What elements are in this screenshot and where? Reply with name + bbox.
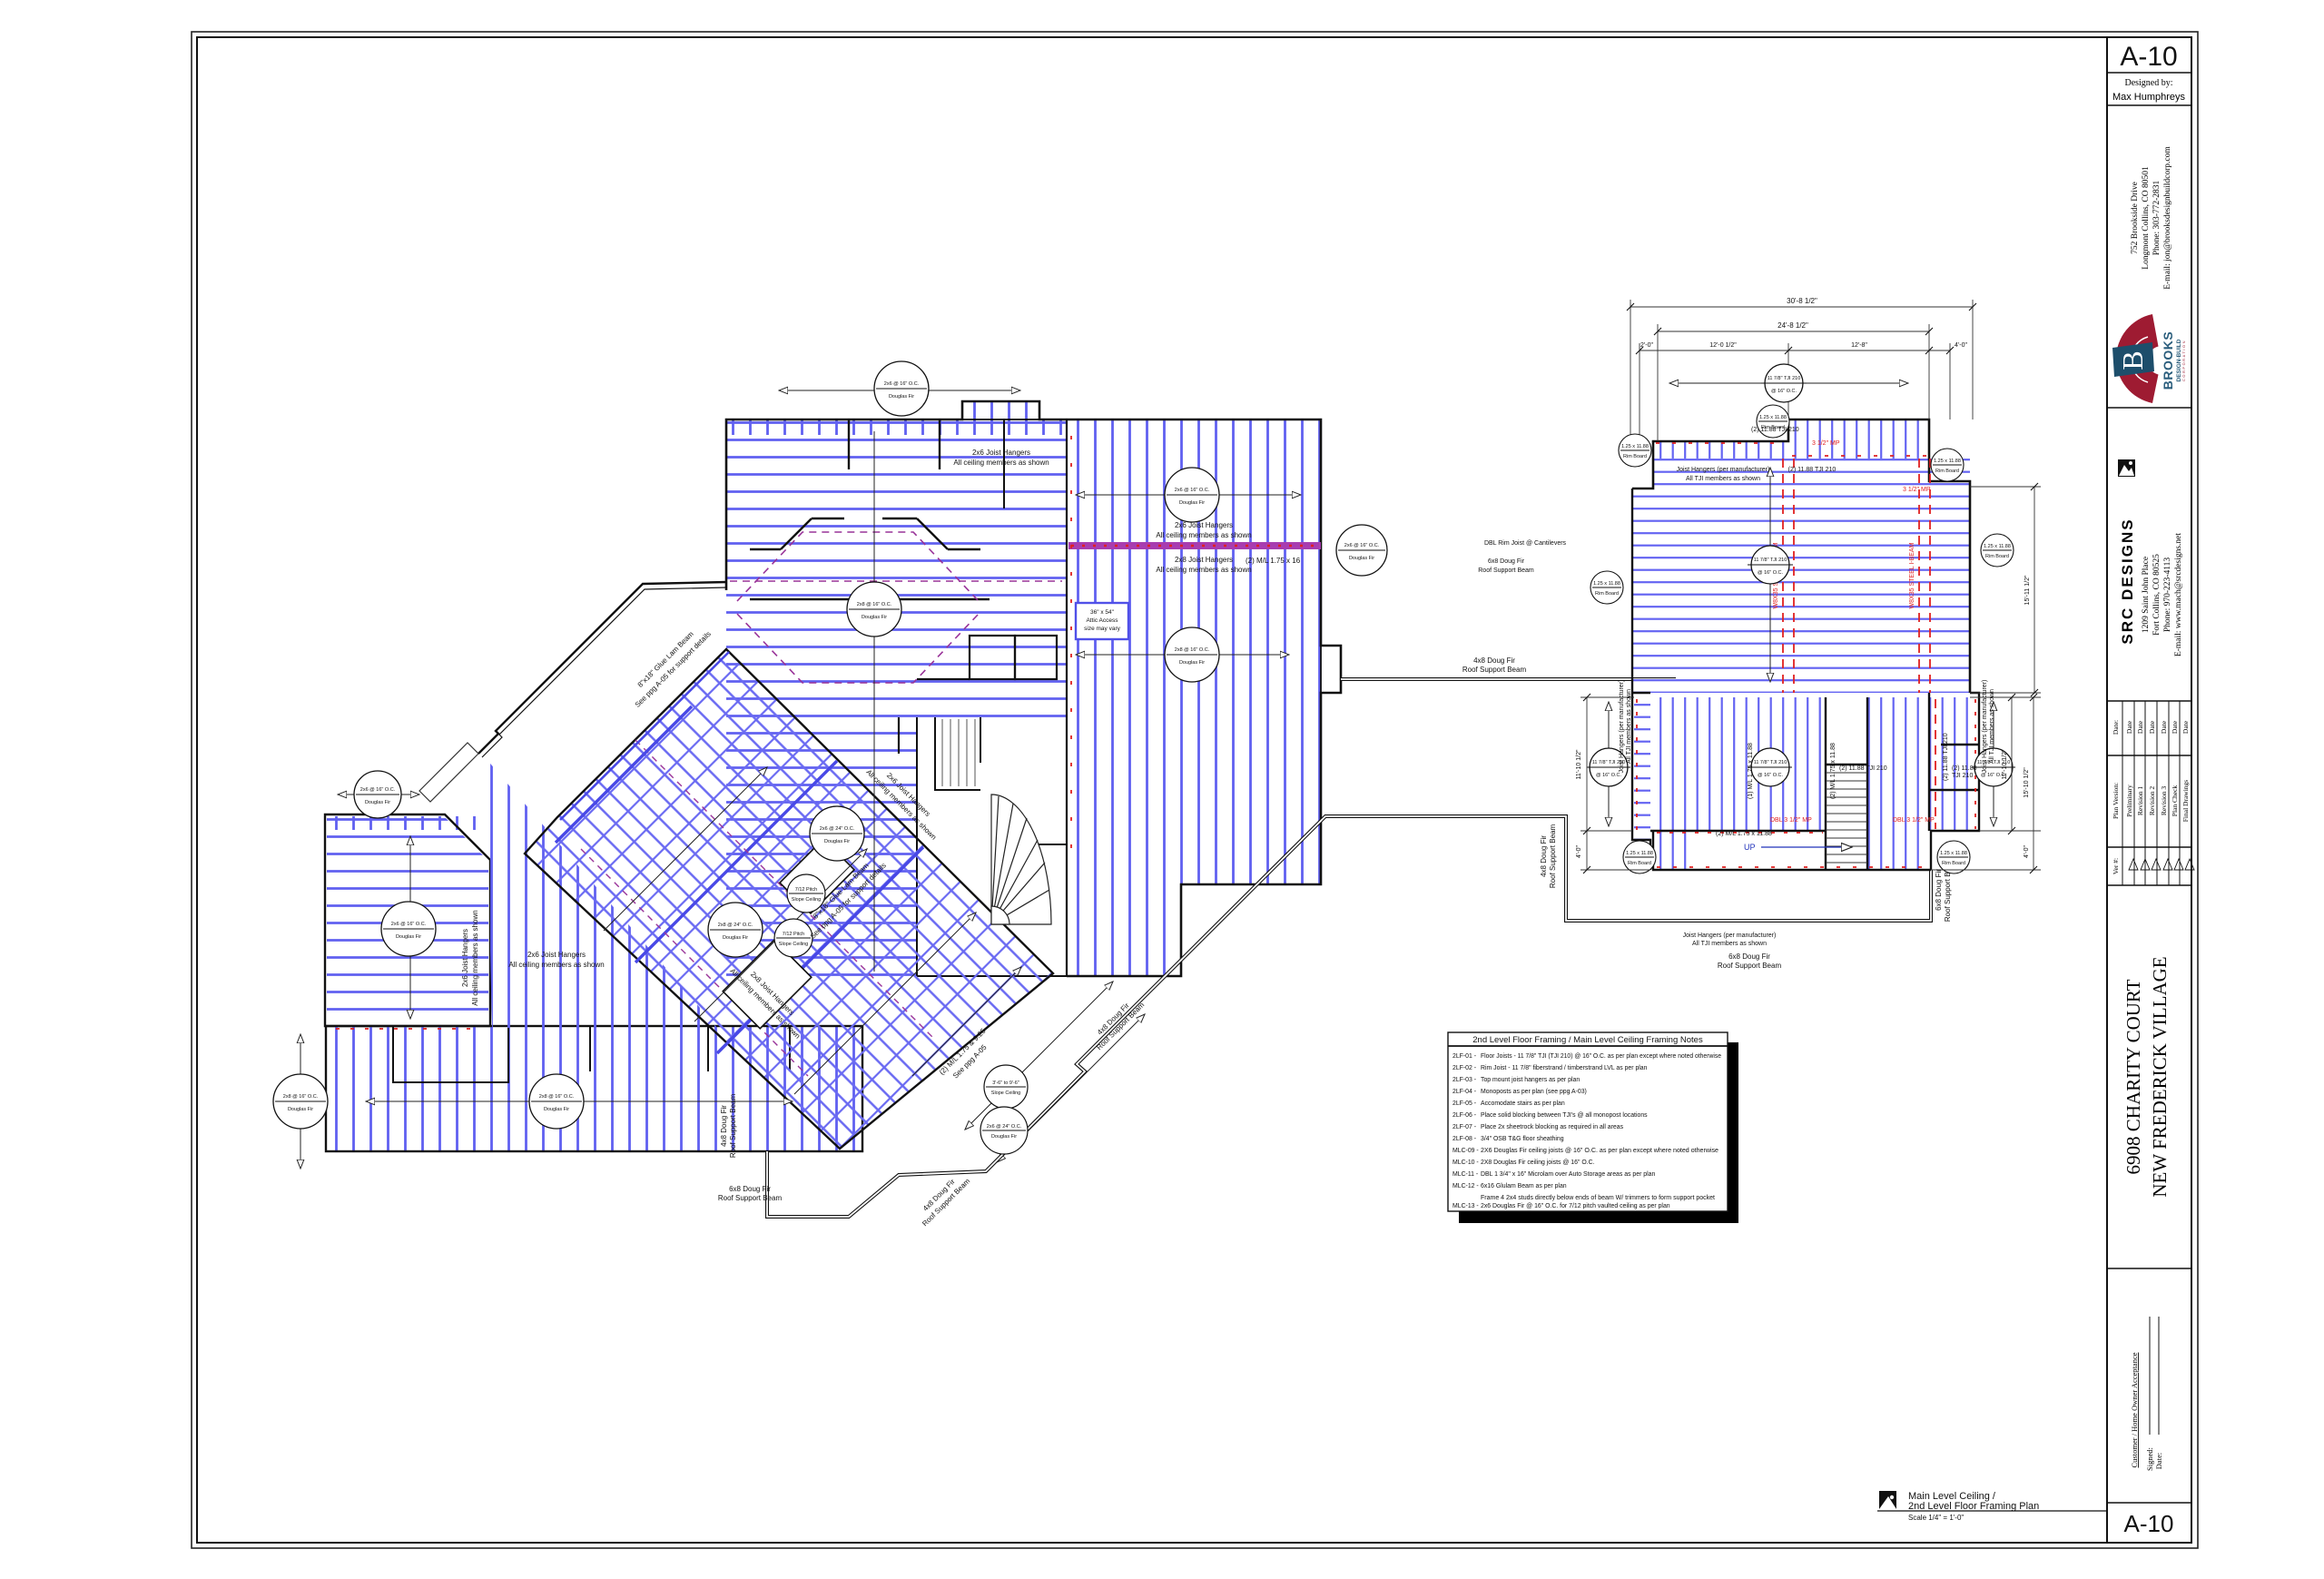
svg-text:4x8 Doug Fir: 4x8 Doug Fir bbox=[720, 1105, 728, 1147]
svg-text:Date: Date bbox=[2148, 720, 2156, 734]
svg-text:@ 16" O.C.: @ 16" O.C. bbox=[1758, 570, 1783, 576]
svg-text:(2) 11.88 TJI 210: (2) 11.88 TJI 210 bbox=[1943, 733, 1949, 781]
svg-text:Date:: Date: bbox=[2154, 1453, 2163, 1469]
svg-text:Top mount joist hangers as per: Top mount joist hangers as per plan bbox=[1481, 1077, 1580, 1083]
svg-text:Rim Board: Rim Board bbox=[1628, 861, 1651, 866]
svg-text:Signed:: Signed: bbox=[2145, 1447, 2154, 1471]
svg-text:Date: Date bbox=[2181, 720, 2190, 734]
svg-text:2LF-04 -: 2LF-04 - bbox=[1452, 1089, 1476, 1095]
svg-text:3 1/2" MP: 3 1/2" MP bbox=[1903, 487, 1931, 493]
svg-text:MLC-09 -: MLC-09 - bbox=[1452, 1148, 1479, 1154]
svg-text:All ceiling members as shown: All ceiling members as shown bbox=[508, 961, 604, 969]
svg-text:1209 Saint John Place: 1209 Saint John Place bbox=[2142, 557, 2151, 633]
svg-text:All TJI members as shown: All TJI members as shown bbox=[1989, 689, 1995, 764]
svg-text:TJI 210: TJI 210 bbox=[1952, 773, 1973, 779]
svg-text:All TJI members as shown: All TJI members as shown bbox=[1692, 941, 1767, 947]
svg-text:Douglas Fir: Douglas Fir bbox=[1179, 500, 1205, 506]
svg-text:Place solid blocking between T: Place solid blocking between TJI's @ all… bbox=[1481, 1112, 1648, 1119]
svg-text:Fort Collins, CO 80525: Fort Collins, CO 80525 bbox=[2152, 554, 2162, 636]
svg-text:B: B bbox=[2116, 350, 2149, 370]
svg-text:2x8 @ 16" O.C.: 2x8 @ 16" O.C. bbox=[539, 1094, 575, 1100]
svg-text:Roof Support Beam: Roof Support Beam bbox=[718, 1194, 783, 1202]
svg-text:(2) 11.88 TJI 210: (2) 11.88 TJI 210 bbox=[1839, 765, 1887, 772]
svg-text:2LF-06 -: 2LF-06 - bbox=[1452, 1112, 1476, 1119]
svg-text:SRC DESIGNS: SRC DESIGNS bbox=[2119, 518, 2136, 644]
svg-text:2LF-07 -: 2LF-07 - bbox=[1452, 1124, 1476, 1130]
svg-text:DBL 3 1/2" MP: DBL 3 1/2" MP bbox=[1770, 817, 1812, 824]
svg-text:2x8 @ 16" O.C.: 2x8 @ 16" O.C. bbox=[283, 1094, 319, 1100]
svg-text:4'-0": 4'-0" bbox=[1576, 845, 1582, 858]
svg-text:Customer / Home Owner Acceptan: Customer / Home Owner Acceptance bbox=[2130, 1352, 2139, 1467]
svg-text:3'-6" to 9'-6": 3'-6" to 9'-6" bbox=[992, 1081, 1019, 1086]
svg-text:2x8 @ 16" O.C.: 2x8 @ 16" O.C. bbox=[1175, 647, 1210, 653]
svg-text:Roof Support Beam: Roof Support Beam bbox=[1478, 567, 1534, 574]
svg-text:11 7/8" TJI 210: 11 7/8" TJI 210 bbox=[1754, 760, 1787, 765]
svg-text:1.25 x 11.88: 1.25 x 11.88 bbox=[1593, 581, 1620, 587]
svg-text:4'-0": 4'-0" bbox=[2024, 845, 2030, 858]
svg-text:Douglas Fir: Douglas Fir bbox=[544, 1107, 569, 1112]
svg-text:2X6 Douglas Fir ceiling joists: 2X6 Douglas Fir ceiling joists @ 16" O.C… bbox=[1481, 1148, 1718, 1154]
svg-text:Date: Date bbox=[2171, 720, 2179, 734]
svg-text:Rim Board: Rim Board bbox=[1595, 591, 1619, 597]
svg-text:11 7/8" TJI 210: 11 7/8" TJI 210 bbox=[1768, 376, 1801, 381]
svg-text:E-mail: jon@brooksdesignbuildc: E-mail: jon@brooksdesignbuildcorp.com bbox=[2163, 146, 2172, 290]
svg-text:All ceiling members as shown: All ceiling members as shown bbox=[471, 910, 479, 1005]
svg-text:MLC-11 -: MLC-11 - bbox=[1452, 1171, 1478, 1178]
svg-text:7/12 Pitch: 7/12 Pitch bbox=[795, 887, 817, 893]
svg-text:2X8 Douglas Fir ceiling joists: 2X8 Douglas Fir ceiling joists @ 16" O.C… bbox=[1481, 1160, 1595, 1166]
svg-text:NEW FREDERICK VILLAGE: NEW FREDERICK VILLAGE bbox=[2149, 956, 2171, 1197]
svg-text:All ceiling members as shown: All ceiling members as shown bbox=[953, 459, 1049, 467]
svg-text:Douglas Fir: Douglas Fir bbox=[889, 394, 914, 400]
svg-text:Frame 4 2x4 studs directly bel: Frame 4 2x4 studs directly below ends of… bbox=[1481, 1195, 1715, 1201]
svg-text:CORPORATION: CORPORATION bbox=[2181, 340, 2186, 381]
svg-text:3/4" OSB T&G floor sheathing: 3/4" OSB T&G floor sheathing bbox=[1481, 1136, 1564, 1142]
svg-text:2x6 @ 24" O.C.: 2x6 @ 24" O.C. bbox=[820, 826, 855, 832]
svg-text:11'-10 1/2": 11'-10 1/2" bbox=[2002, 749, 2008, 779]
svg-text:Designed by:: Designed by: bbox=[2124, 78, 2172, 88]
svg-text:A-10: A-10 bbox=[2120, 42, 2177, 72]
svg-text:Rim Board: Rim Board bbox=[1942, 861, 1965, 866]
svg-text:Douglas Fir: Douglas Fir bbox=[365, 800, 390, 805]
svg-text:Rim Board: Rim Board bbox=[1985, 554, 2009, 559]
svg-text:2LF-05 -: 2LF-05 - bbox=[1452, 1100, 1476, 1107]
svg-text:Douglas Fir: Douglas Fir bbox=[862, 615, 887, 620]
svg-text:DBL 3 1/2" MP: DBL 3 1/2" MP bbox=[1893, 817, 1935, 824]
svg-text:12'-0 1/2": 12'-0 1/2" bbox=[1709, 342, 1737, 349]
svg-text:2x6 @ 16" O.C.: 2x6 @ 16" O.C. bbox=[391, 922, 427, 927]
svg-text:6x8 Doug Fir: 6x8 Doug Fir bbox=[1728, 952, 1770, 961]
svg-text:DBL 1 3/4" x 16" Microlam over: DBL 1 3/4" x 16" Microlam over Auto Stor… bbox=[1481, 1171, 1655, 1178]
svg-text:1.25 x 11.88: 1.25 x 11.88 bbox=[1934, 459, 1961, 464]
svg-text:2nd Level Floor Framing Plan: 2nd Level Floor Framing Plan bbox=[1908, 1501, 2039, 1512]
svg-text:Floor Joists - 11 7/8" TJI (TJ: Floor Joists - 11 7/8" TJI (TJI 210) @ 1… bbox=[1481, 1053, 1721, 1060]
svg-text:Douglas Fir: Douglas Fir bbox=[1179, 660, 1205, 666]
svg-text:Monoposts as per plan (see ppg: Monoposts as per plan (see ppg A-03) bbox=[1481, 1089, 1587, 1095]
svg-text:Longmont Collins, CO 80501: Longmont Collins, CO 80501 bbox=[2142, 166, 2151, 270]
svg-text:Rim Board: Rim Board bbox=[1623, 454, 1647, 459]
svg-text:2x8 Joist Hangers: 2x8 Joist Hangers bbox=[1175, 556, 1233, 564]
svg-text:MLC-12 -: MLC-12 - bbox=[1452, 1183, 1479, 1189]
svg-text:2x6 Joist Hangers: 2x6 Joist Hangers bbox=[461, 929, 469, 987]
svg-text:Final Drawings: Final Drawings bbox=[2181, 780, 2190, 823]
svg-text:Accomodate stairs as per plan: Accomodate stairs as per plan bbox=[1481, 1100, 1565, 1107]
svg-text:Scale 1/4" = 1'-0": Scale 1/4" = 1'-0" bbox=[1908, 1514, 1964, 1522]
svg-text:Revision 1: Revision 1 bbox=[2136, 786, 2144, 816]
svg-text:Douglas Fir: Douglas Fir bbox=[288, 1107, 313, 1112]
svg-text:6908 CHARITY COURT: 6908 CHARITY COURT bbox=[2122, 979, 2144, 1174]
svg-text:Date: Date bbox=[2160, 720, 2168, 734]
svg-text:MLC-10 -: MLC-10 - bbox=[1452, 1160, 1479, 1166]
svg-text:36" x 54": 36" x 54" bbox=[1090, 609, 1115, 616]
svg-text:2x8 @ 24" O.C.: 2x8 @ 24" O.C. bbox=[718, 923, 753, 928]
svg-text:(2) M/L 1.75 x 11.88: (2) M/L 1.75 x 11.88 bbox=[1716, 831, 1772, 837]
svg-text:Rim Joist - 11 7/8" fiberstran: Rim Joist - 11 7/8" fiberstrand / timber… bbox=[1481, 1065, 1648, 1071]
svg-text:24'-8 1/2": 24'-8 1/2" bbox=[1777, 321, 1808, 330]
svg-text:Douglas Fir: Douglas Fir bbox=[723, 935, 748, 941]
svg-text:Revision 2: Revision 2 bbox=[2148, 786, 2156, 816]
svg-text:(2) M/L 1.75 x 16: (2) M/L 1.75 x 16 bbox=[1246, 557, 1301, 565]
svg-text:A-10: A-10 bbox=[2124, 1510, 2174, 1537]
svg-text:BROOKS: BROOKS bbox=[2161, 331, 2175, 390]
svg-text:4x8 Doug Fir: 4x8 Doug Fir bbox=[1540, 835, 1548, 877]
svg-text:Joist Hangers (per manufacture: Joist Hangers (per manufacturer) bbox=[1982, 680, 1988, 774]
svg-text:(1) M/L 1.75 x 11.88: (1) M/L 1.75 x 11.88 bbox=[1748, 743, 1754, 799]
svg-text:Joist Hangers (per manufacture: Joist Hangers (per manufacturer) bbox=[1677, 467, 1770, 473]
svg-text:2x8 @ 16" O.C.: 2x8 @ 16" O.C. bbox=[857, 602, 892, 607]
svg-text:size may vary: size may vary bbox=[1084, 626, 1120, 632]
svg-text:UP: UP bbox=[1744, 843, 1756, 852]
svg-text:Place 2x sheetrock blocking as: Place 2x sheetrock blocking as required … bbox=[1481, 1124, 1624, 1130]
svg-text:2x6 @ 16" O.C.: 2x6 @ 16" O.C. bbox=[884, 381, 920, 387]
svg-text:Roof Support Beam: Roof Support Beam bbox=[1718, 962, 1782, 970]
svg-text:Douglas Fir: Douglas Fir bbox=[396, 934, 421, 940]
svg-text:Preliminary: Preliminary bbox=[2125, 785, 2133, 817]
svg-text:Douglas Fir: Douglas Fir bbox=[824, 839, 850, 844]
svg-text:Douglas Fir: Douglas Fir bbox=[991, 1134, 1017, 1140]
svg-text:Phone: 970-223-4113: Phone: 970-223-4113 bbox=[2163, 558, 2172, 632]
svg-text:2x6 Douglas Fir @ 16" O.C. for: 2x6 Douglas Fir @ 16" O.C. for 7/12 pitc… bbox=[1481, 1203, 1670, 1209]
svg-text:2LF-08 -: 2LF-08 - bbox=[1452, 1136, 1476, 1142]
svg-text:2x6 @ 16" O.C.: 2x6 @ 16" O.C. bbox=[360, 787, 396, 793]
svg-text:2nd Level Floor Framing / Main: 2nd Level Floor Framing / Main Level Cei… bbox=[1472, 1035, 1703, 1045]
svg-text:All TJI members as shown: All TJI members as shown bbox=[1626, 689, 1632, 764]
svg-text:Date:: Date: bbox=[2112, 720, 2120, 735]
svg-text:6x8 Doug Fir: 6x8 Doug Fir bbox=[729, 1185, 771, 1193]
svg-text:1.25 x 11.88: 1.25 x 11.88 bbox=[1621, 444, 1649, 449]
svg-text:Max Humphreys: Max Humphreys bbox=[2112, 92, 2186, 103]
svg-text:MLC-13 -: MLC-13 - bbox=[1452, 1203, 1479, 1209]
svg-text:4x8 Doug Fir: 4x8 Doug Fir bbox=[1473, 656, 1515, 665]
svg-text:Date: Date bbox=[2125, 720, 2133, 734]
svg-text:2x6 @ 16" O.C.: 2x6 @ 16" O.C. bbox=[1344, 543, 1380, 548]
svg-text:Plan Version:: Plan Version: bbox=[2112, 783, 2120, 819]
svg-text:11 7/8" TJI 210: 11 7/8" TJI 210 bbox=[1754, 558, 1787, 563]
svg-text:@ 16" O.C.: @ 16" O.C. bbox=[1758, 773, 1783, 778]
svg-text:6x16 Glulam Beam as per plan: 6x16 Glulam Beam as per plan bbox=[1481, 1183, 1567, 1189]
svg-text:Plan Check: Plan Check bbox=[2171, 785, 2179, 817]
svg-text:Joist Hangers (per manufacture: Joist Hangers (per manufacturer) bbox=[1619, 680, 1625, 774]
svg-text:2'-0": 2'-0" bbox=[1640, 342, 1653, 349]
svg-text:11'-10 1/2": 11'-10 1/2" bbox=[1576, 749, 1582, 779]
svg-text:15'-10 1/2": 15'-10 1/2" bbox=[2024, 767, 2030, 798]
svg-text:2LF-02 -: 2LF-02 - bbox=[1452, 1065, 1476, 1071]
svg-text:Phone: 303-772-2831: Phone: 303-772-2831 bbox=[2152, 180, 2162, 255]
svg-text:1.25 x 11.88: 1.25 x 11.88 bbox=[1984, 544, 2011, 549]
svg-text:(2) M/L 1.75 x 11.88: (2) M/L 1.75 x 11.88 bbox=[1830, 743, 1837, 799]
svg-text:Roof Support Beam: Roof Support Beam bbox=[729, 1094, 737, 1159]
svg-text:1.25 x 11.88: 1.25 x 11.88 bbox=[1940, 851, 1967, 856]
svg-text:(2) 11.88: (2) 11.88 bbox=[1952, 765, 1977, 772]
svg-text:1.25 x 11.88: 1.25 x 11.88 bbox=[1759, 415, 1787, 420]
svg-text:(2) 11.88 TJI 210: (2) 11.88 TJI 210 bbox=[1751, 427, 1799, 433]
svg-text:2x6 Joist Hangers: 2x6 Joist Hangers bbox=[972, 449, 1030, 457]
svg-text:2LF-03 -: 2LF-03 - bbox=[1452, 1077, 1476, 1083]
svg-text:2x6 Joist Hangers: 2x6 Joist Hangers bbox=[1175, 521, 1233, 529]
svg-text:E-mail: www.mach@srcdesigns.ne: E-mail: www.mach@srcdesigns.net bbox=[2174, 533, 2183, 656]
svg-text:Revision 3: Revision 3 bbox=[2160, 786, 2168, 816]
svg-text:Ver #:: Ver #: bbox=[2112, 858, 2120, 874]
svg-text:6x8 Doug Fir: 6x8 Doug Fir bbox=[1488, 558, 1525, 565]
svg-text:2x6 @ 24" O.C.: 2x6 @ 24" O.C. bbox=[987, 1124, 1022, 1130]
svg-text:6x8 Doug Fir: 6x8 Doug Fir bbox=[1935, 869, 1943, 911]
svg-text:Roof Support Beam: Roof Support Beam bbox=[1549, 824, 1557, 889]
svg-text:All ceiling members as shown: All ceiling members as shown bbox=[1156, 566, 1251, 574]
svg-text:15'-11 1/2": 15'-11 1/2" bbox=[2024, 575, 2031, 605]
svg-text:Rim Board: Rim Board bbox=[1935, 469, 1959, 474]
svg-text:All TJI members as shown: All TJI members as shown bbox=[1686, 476, 1760, 482]
svg-text:4'-0": 4'-0" bbox=[1955, 342, 1967, 349]
svg-text:2x6 @ 16" O.C.: 2x6 @ 16" O.C. bbox=[1175, 488, 1210, 493]
svg-text:Douglas Fir: Douglas Fir bbox=[1349, 556, 1374, 561]
svg-text:752 Brookside Drive: 752 Brookside Drive bbox=[2131, 182, 2140, 254]
svg-text:(2) 11.88 TJI 210: (2) 11.88 TJI 210 bbox=[1788, 467, 1837, 473]
svg-text:DBL Rim Joist @ Cantilevers: DBL Rim Joist @ Cantilevers bbox=[1484, 540, 1567, 547]
svg-text:@ 16" O.C.: @ 16" O.C. bbox=[1771, 389, 1797, 394]
svg-text:1.25 x 11.88: 1.25 x 11.88 bbox=[1626, 851, 1653, 856]
svg-text:Slope Ceiling: Slope Ceiling bbox=[792, 897, 821, 903]
svg-text:All ceiling members as shown: All ceiling members as shown bbox=[1156, 531, 1251, 539]
svg-text:Attic Access: Attic Access bbox=[1086, 617, 1118, 624]
svg-text:2LF-01 -: 2LF-01 - bbox=[1452, 1053, 1476, 1060]
svg-text:30'-8 1/2": 30'-8 1/2" bbox=[1787, 297, 1817, 305]
svg-text:Slope Ceiling: Slope Ceiling bbox=[991, 1090, 1020, 1096]
svg-text:Joist Hangers (per manufacture: Joist Hangers (per manufacturer) bbox=[1683, 933, 1777, 939]
svg-text:3 1/2" MP: 3 1/2" MP bbox=[1812, 440, 1840, 447]
svg-text:7/12 Pitch: 7/12 Pitch bbox=[783, 932, 804, 937]
svg-text:Slope Ceiling: Slope Ceiling bbox=[779, 942, 808, 947]
svg-text:W8X35 STEEL I-BEAM: W8X35 STEEL I-BEAM bbox=[1909, 542, 1915, 608]
svg-text:Date: Date bbox=[2136, 720, 2144, 734]
svg-text:12'-8": 12'-8" bbox=[1851, 342, 1867, 349]
svg-text:2x6 Joist Hangers: 2x6 Joist Hangers bbox=[527, 951, 586, 959]
svg-text:Roof Support Beam: Roof Support Beam bbox=[1462, 666, 1527, 674]
